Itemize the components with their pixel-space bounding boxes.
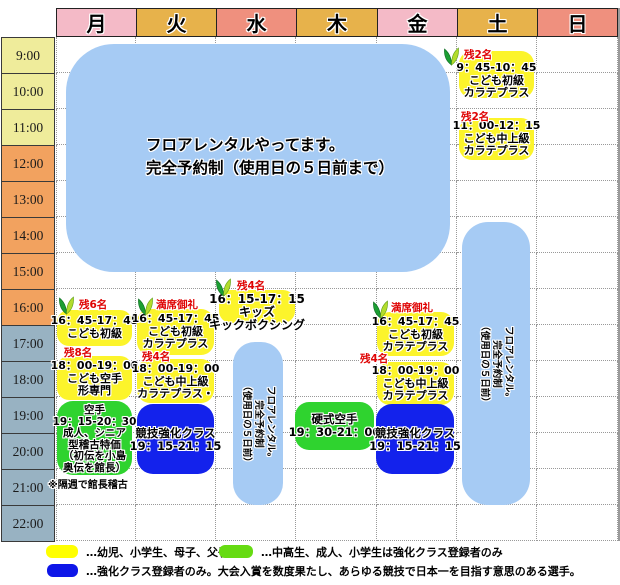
grid-cell — [457, 181, 537, 217]
floor-rental-notice: フロアレンタルやってます。 完全予約制（使用日の５日前まで） — [66, 44, 450, 272]
grid-cell — [537, 469, 618, 505]
availability-badge: 満席御礼 — [391, 300, 433, 315]
event-line: 空手 — [84, 405, 105, 417]
time-cell-2200: 22:00 — [1, 505, 55, 542]
time-cell-1500: 15:00 — [1, 253, 55, 290]
grid-cell — [296, 505, 377, 541]
availability-badge: 残6名 — [79, 297, 107, 312]
event-block-sat-kids-mid: 11：00-12：15 こども中上級 カラテプラス — [459, 118, 534, 160]
time-label: 17:00 — [13, 336, 44, 352]
event-block-fri-kids-mid: 18：00-19：00 こども中上級 カラテプラス — [377, 362, 454, 405]
event-block-tue-kyogi: 競技強化クラス 19：15-21：15 — [137, 404, 214, 474]
event-line: 19：30-21：00 — [289, 426, 381, 439]
event-line: 19：15-21：15 — [130, 440, 222, 453]
grid-cell — [296, 289, 377, 325]
day-header-mon: 月 — [56, 8, 137, 37]
day-header-wed: 水 — [216, 8, 297, 37]
grid-cell — [457, 505, 537, 541]
floor-rental-block-sat: フロアレンタル。 完全予約制 （使用日の５日前） — [462, 222, 530, 505]
grid-cell — [537, 433, 618, 469]
event-block-mon-karate-adult: 空手 19：15-20：30 成人、シニア 型稽古特価 （初伝を小島 奥伝を館長… — [57, 401, 132, 475]
event-line: 18：00-19：00 — [51, 360, 139, 373]
legend-green-text: …中高生、成人、小学生は強化クラス登録者のみ — [261, 544, 503, 560]
time-label: 16:00 — [13, 300, 44, 316]
biweekly-note: ※隔週で館長稽古 — [48, 476, 128, 491]
event-block-thu-koshiki-karate: 硬式空手 19：30-21：00 — [295, 402, 374, 450]
time-label: 22:00 — [13, 516, 44, 532]
legend-blue-swatch — [47, 564, 78, 577]
event-line: カラテプラス・ — [137, 388, 214, 401]
day-label-thu: 木 — [327, 8, 347, 37]
event-line: 9：45-10：45 — [456, 62, 536, 75]
beginner-sprout-icon — [443, 45, 460, 66]
time-label: 10:00 — [13, 84, 44, 100]
floor-rental-vertical-text: フロアレンタル。 完全予約制 （使用日の５日前） — [240, 381, 276, 467]
availability-badge: 残4名 — [360, 351, 388, 366]
event-block-mon-kids-beginner: 16：45-17：45 こども初級 — [57, 310, 132, 346]
day-header-thu: 木 — [296, 8, 378, 37]
time-cell-1200: 12:00 — [1, 145, 55, 182]
time-label: 15:00 — [13, 264, 44, 280]
day-header-sat: 土 — [457, 8, 538, 37]
legend-yellow-text: …幼児、小学生、母子、父子 — [86, 544, 229, 560]
time-cell-1100: 11:00 — [1, 109, 55, 146]
event-line: カラテプラス — [383, 390, 449, 403]
grid-cell — [296, 361, 377, 397]
time-label: 11:00 — [13, 120, 43, 136]
day-label-fri: 金 — [408, 8, 428, 37]
time-label: 9:00 — [16, 48, 40, 64]
day-header-sun: 日 — [537, 8, 618, 37]
event-block-tue-kids-mid: 18：00-19：00 こども中上級 カラテプラス・ — [137, 359, 214, 403]
event-line: 形専門 — [78, 385, 111, 398]
floor-rental-notice-text: フロアレンタルやってます。 完全予約制（使用日の５日前まで） — [146, 134, 394, 180]
legend-blue-text: …強化クラス登録者のみ。大会入賞を数度果たし、あらゆる競技で日本一を目指す意思の… — [86, 563, 581, 579]
time-cell-1400: 14:00 — [1, 217, 55, 254]
event-line: 19：15-21：15 — [369, 440, 461, 453]
event-line: カラテプラス — [383, 341, 449, 354]
day-label-sun: 日 — [568, 8, 588, 37]
time-cell-2100: 21:00 — [1, 469, 55, 506]
grid-cell — [537, 181, 618, 217]
grid-cell — [537, 217, 618, 253]
availability-badge: 残4名 — [142, 349, 170, 364]
grid-cell — [56, 505, 136, 541]
time-label: 20:00 — [13, 444, 44, 460]
floor-rental-block-wed: フロアレンタル。 完全予約制 （使用日の５日前） — [233, 342, 283, 505]
grid-cell — [537, 397, 618, 433]
beginner-sprout-icon — [137, 295, 154, 316]
event-line: 16：45-17：45 — [51, 315, 139, 328]
event-line: カラテプラス — [464, 87, 530, 100]
event-line: 奥伝を館長） — [63, 463, 126, 475]
grid-cell — [377, 469, 457, 505]
rental-line: （使用日の５日前） — [478, 321, 490, 407]
beginner-sprout-icon — [58, 294, 75, 315]
grid-cell — [537, 73, 618, 109]
grid-cell — [377, 505, 457, 541]
time-label: 12:00 — [13, 156, 44, 172]
grid-cell — [537, 37, 618, 73]
grid-cell — [537, 109, 618, 145]
rental-line: 完全予約制 — [490, 321, 502, 407]
time-label: 14:00 — [13, 228, 44, 244]
notice-line: フロアレンタルやってます。 — [146, 134, 394, 157]
beginner-sprout-icon — [215, 276, 232, 297]
grid-cell — [216, 505, 296, 541]
event-line: 成人、シニア — [63, 428, 126, 440]
event-block-fri-kyogi: 競技強化クラス 19：15-21：15 — [376, 404, 454, 474]
legend-green-swatch — [219, 545, 253, 558]
availability-badge: 残2名 — [461, 109, 489, 124]
day-header-tue: 火 — [136, 8, 217, 37]
rental-line: フロアレンタル。 — [264, 381, 276, 467]
event-line: （初伝を小島 — [63, 451, 126, 463]
grid-cell — [296, 469, 377, 505]
time-cell-0900: 9:00 — [1, 37, 55, 74]
time-cell-1600: 16:00 — [1, 289, 55, 326]
legend-yellow-swatch — [46, 545, 78, 558]
beginner-sprout-icon — [372, 298, 389, 319]
day-header-fri: 金 — [377, 8, 458, 37]
time-cell-1900: 19:00 — [1, 397, 55, 434]
day-label-tue: 火 — [167, 8, 187, 37]
event-line: 18：00-19：00 — [372, 365, 460, 378]
rental-line: 完全予約制 — [252, 381, 264, 467]
grid-cell — [537, 361, 618, 397]
time-label: 21:00 — [13, 480, 44, 496]
time-cell-1000: 10:00 — [1, 73, 55, 110]
availability-badge: 残4名 — [237, 278, 265, 293]
availability-badge: 残8名 — [64, 345, 92, 360]
time-cell-1800: 18:00 — [1, 361, 55, 398]
availability-badge: 残2名 — [464, 47, 492, 62]
time-label: 18:00 — [13, 372, 44, 388]
grid-cell — [537, 505, 618, 541]
event-block-mon-kids-kata: 18：00-19：00 こども空手 形専門 — [57, 356, 132, 400]
event-line: こども初級 — [67, 328, 122, 341]
day-label-sat: 土 — [488, 8, 508, 37]
rental-line: フロアレンタル。 — [502, 321, 514, 407]
day-label-wed: 水 — [247, 8, 267, 37]
floor-rental-vertical-text: フロアレンタル。 完全予約制 （使用日の５日前） — [478, 321, 514, 407]
grid-cell — [136, 505, 216, 541]
time-cell-2000: 20:00 — [1, 433, 55, 470]
grid-cell — [537, 253, 618, 289]
availability-badge: 満席御礼 — [156, 297, 198, 312]
grid-cell — [537, 145, 618, 181]
notice-line: 完全予約制（使用日の５日前まで） — [146, 157, 394, 180]
event-line: キックボクシング — [209, 319, 305, 332]
time-label: 13:00 — [13, 192, 44, 208]
time-label: 19:00 — [13, 408, 44, 424]
grid-cell — [136, 469, 216, 505]
weekly-schedule-board: 月 火 水 木 金 土 日 9:00 10:00 11:00 12:00 13:… — [0, 0, 620, 585]
grid-cell — [537, 325, 618, 361]
time-cell-1700: 17:00 — [1, 325, 55, 362]
time-cell-1300: 13:00 — [1, 181, 55, 218]
event-line: 18：00-19：00 — [132, 363, 220, 376]
grid-cell — [537, 289, 618, 325]
day-label-mon: 月 — [87, 8, 107, 37]
event-line: カラテプラス — [464, 145, 530, 158]
rental-line: （使用日の５日前） — [240, 381, 252, 467]
